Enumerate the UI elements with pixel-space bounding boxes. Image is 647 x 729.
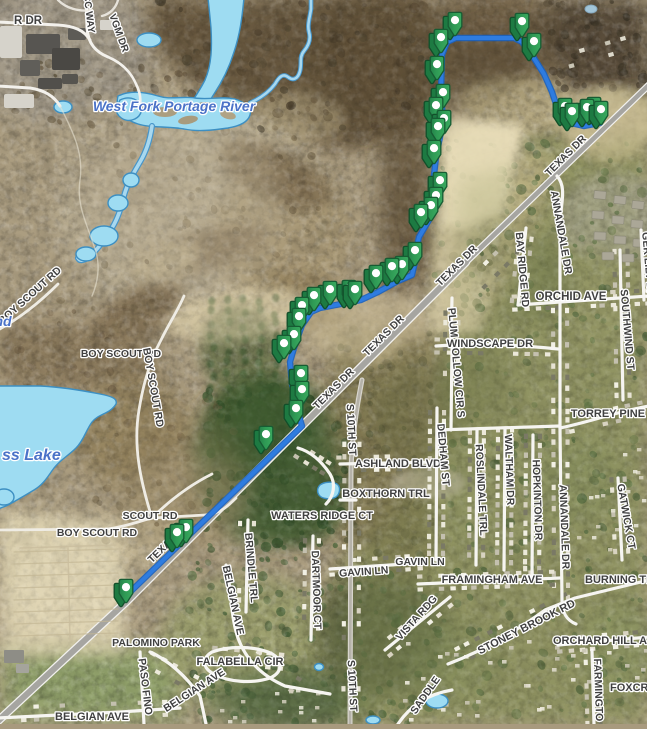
svg-text:nd: nd [0, 313, 12, 329]
svg-text:BURNING TR: BURNING TR [585, 574, 647, 586]
svg-text:ASHLAND BLVD: ASHLAND BLVD [355, 458, 441, 470]
svg-text:FALABELLA CIR: FALABELLA CIR [197, 656, 284, 668]
svg-text:ss Lake: ss Lake [2, 447, 61, 464]
svg-text:WATERS RIDGE CT: WATERS RIDGE CT [271, 510, 373, 522]
svg-text:FARMINGTO: FARMINGTO [591, 658, 605, 721]
svg-text:PALOMINO PARK: PALOMINO PARK [112, 637, 200, 649]
svg-text:West Fork Portage River: West Fork Portage River [93, 98, 257, 114]
svg-text:BOY SCOUT RD: BOY SCOUT RD [57, 527, 138, 539]
svg-text:WALTHAM DR: WALTHAM DR [502, 434, 516, 506]
svg-text:FOXCR: FOXCR [610, 682, 647, 694]
svg-text:GAVIN LN: GAVIN LN [395, 556, 444, 568]
svg-text:WINDSCAPE DR: WINDSCAPE DR [447, 338, 533, 350]
svg-text:BELGIAN AVE: BELGIAN AVE [55, 711, 129, 723]
svg-text:ORCHARD HILL A: ORCHARD HILL A [553, 635, 647, 647]
svg-text:R DR: R DR [14, 15, 43, 27]
svg-text:BOXTHORN TRL: BOXTHORN TRL [342, 488, 430, 500]
svg-text:TORREY PINE: TORREY PINE [571, 408, 645, 420]
svg-text:ORCHID AVE: ORCHID AVE [536, 291, 607, 303]
svg-text:FRAMINGHAM AVE: FRAMINGHAM AVE [442, 574, 543, 586]
svg-text:SCOUT RD: SCOUT RD [123, 510, 178, 522]
